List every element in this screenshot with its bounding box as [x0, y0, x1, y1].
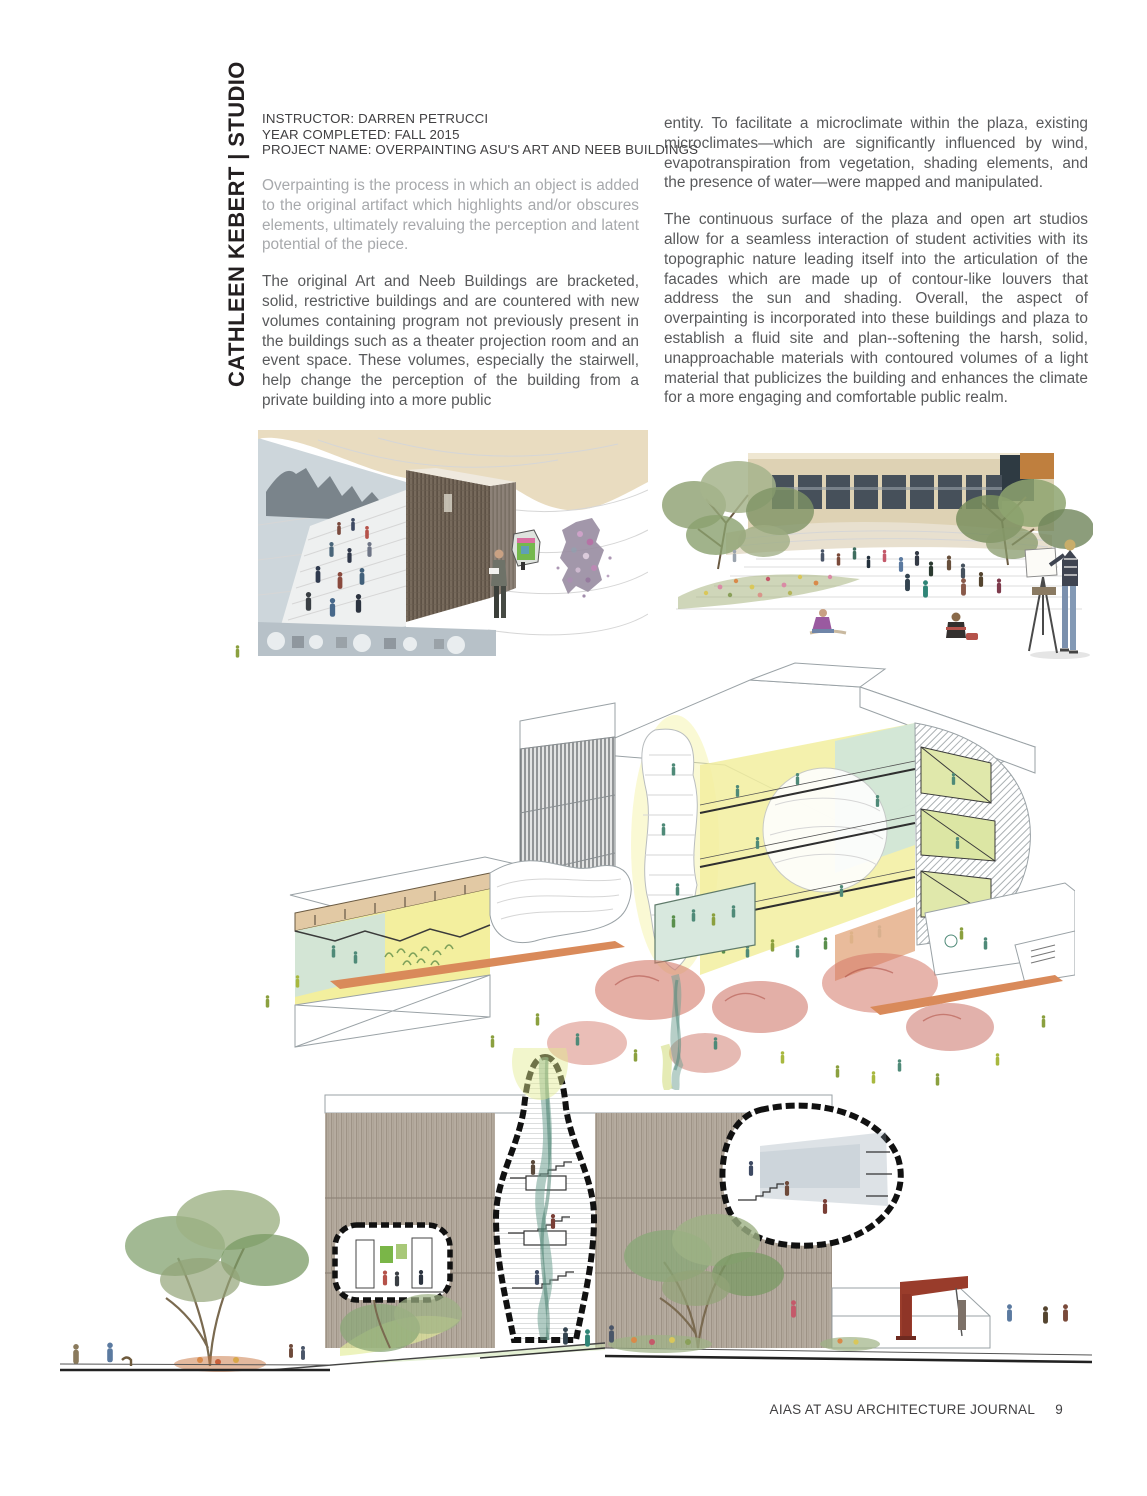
seated-figures [810, 609, 978, 640]
project-title-text: CATHLEEN KEBERT | STUDIO [224, 61, 250, 387]
flower-shrubs [678, 574, 860, 609]
project-meta: INSTRUCTOR: DARREN PETRUCCI YEAR COMPLET… [262, 111, 698, 158]
elevation-drawing [60, 1048, 1092, 1396]
meta-year: YEAR COMPLETED: FALL 2015 [262, 127, 698, 143]
kiosk-screen [512, 530, 540, 570]
left-tree [125, 1190, 309, 1372]
body-paragraph-2: entity. To facilitate a microclimate wit… [664, 114, 1088, 193]
figure-plaza-perspective [660, 437, 1093, 660]
wood-stair-volume [406, 470, 490, 622]
axonometric-drawing [235, 645, 1075, 1090]
figure-axonometric-cutaway [235, 645, 1075, 1090]
interior-perspective-drawing [258, 430, 648, 656]
artwork-blob [557, 518, 612, 598]
page-number: 9 [1055, 1402, 1063, 1417]
project-vertical-title: CATHLEEN KEBERT | STUDIO [224, 103, 254, 387]
teardrop-stair-shaft [496, 1048, 594, 1348]
left-text-column: Overpainting is the process in which an … [262, 176, 639, 411]
figure-interior-perspective [258, 430, 648, 656]
meta-project-name: PROJECT NAME: OVERPAINTING ASU'S ART AND… [262, 142, 698, 158]
plaza-perspective-drawing [660, 437, 1093, 660]
figure-site-elevation [60, 1048, 1092, 1396]
page-footer: AIAS AT ASU ARCHITECTURE JOURNAL9 [60, 1402, 1063, 1417]
intro-paragraph: Overpainting is the process in which an … [262, 176, 639, 255]
painter-figure [1025, 540, 1090, 660]
journal-name: AIAS AT ASU ARCHITECTURE JOURNAL [770, 1402, 1036, 1417]
journal-page: CATHLEEN KEBERT | STUDIO INSTRUCTOR: DAR… [0, 0, 1147, 1496]
body-paragraph-3: The continuous surface of the plaza and … [664, 210, 1088, 408]
left-window-cutout [335, 1225, 450, 1300]
body-paragraph-1: The original Art and Neeb Buildings are … [262, 272, 639, 411]
right-text-column: entity. To facilitate a microclimate wit… [664, 114, 1088, 408]
meta-instructor: INSTRUCTOR: DARREN PETRUCCI [262, 111, 698, 127]
